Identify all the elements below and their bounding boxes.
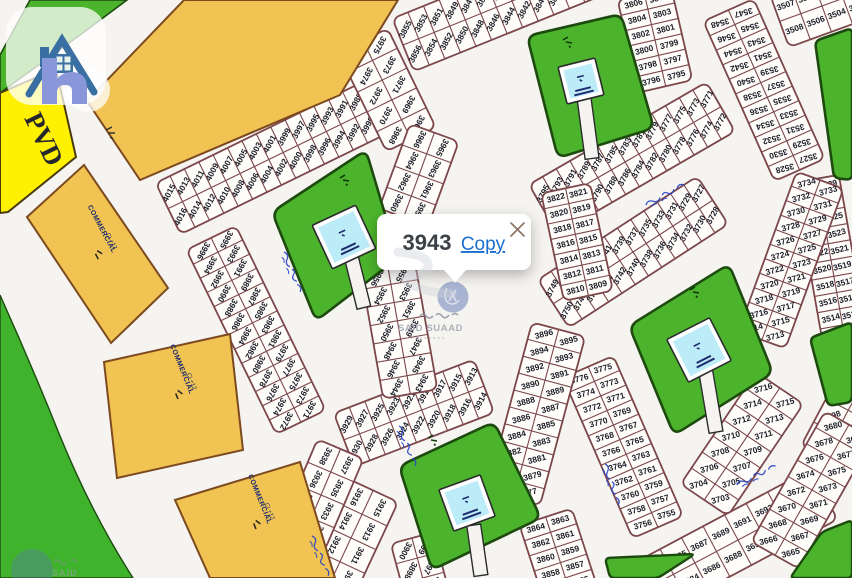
svg-text:SAID SUAAD: SAID SUAAD xyxy=(398,323,463,334)
svg-text:Copy: Copy xyxy=(461,234,506,255)
svg-text:SAID: SAID xyxy=(52,568,78,578)
svg-text:3943: 3943 xyxy=(403,230,452,255)
